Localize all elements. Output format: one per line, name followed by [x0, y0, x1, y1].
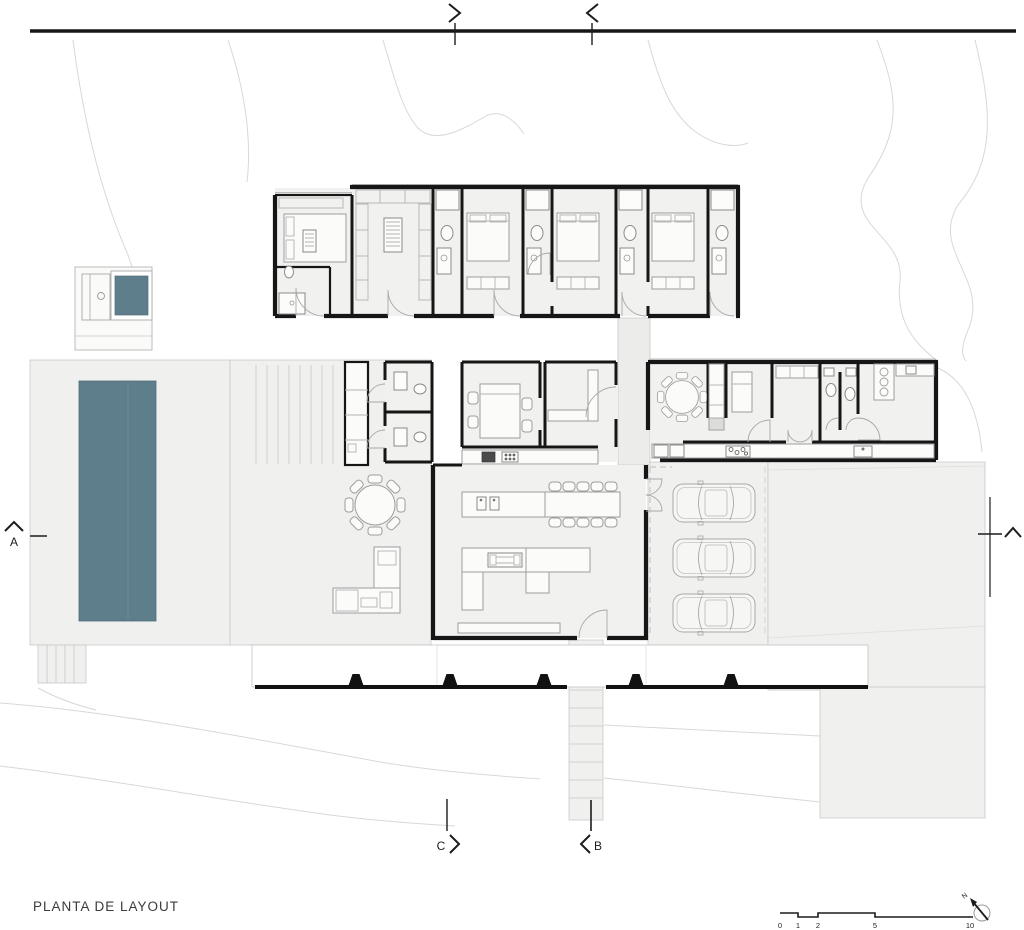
- scale-bar: 0 1 2 5 10: [778, 913, 974, 930]
- pool-area: [75, 267, 156, 621]
- chair: [522, 420, 532, 432]
- toilet: [624, 226, 636, 241]
- chair: [468, 416, 478, 428]
- kitchen-sink: [854, 446, 872, 457]
- kitchen-island: [462, 492, 545, 517]
- dining-table: [545, 492, 620, 517]
- section-marker-top-left: [449, 4, 460, 45]
- toilet: [716, 226, 728, 241]
- car: [673, 591, 755, 635]
- service-wing: [648, 359, 938, 460]
- living-hall: [433, 465, 662, 640]
- corridor-spine: [618, 318, 650, 465]
- middle-wing: [345, 362, 618, 465]
- master-toilet: [285, 266, 294, 278]
- spa-tub: [115, 276, 148, 315]
- pool-house: [75, 267, 152, 350]
- closet-island: [384, 218, 402, 252]
- scale-tick-5: 5: [873, 921, 877, 930]
- section-arrow-up-icon: [5, 522, 23, 531]
- floor-plan-sheet: A C B PLANTA DE LAYOUT 0 1 2 5 10: [0, 0, 1024, 930]
- toilet: [414, 384, 426, 394]
- toilet: [826, 384, 836, 397]
- scale-tick-0: 0: [778, 921, 782, 930]
- section-arrow-left-icon: [587, 4, 598, 22]
- section-label-a: A: [10, 535, 18, 549]
- north-label: N: [961, 892, 969, 901]
- sideboard: [458, 623, 560, 633]
- kitchen-island: [732, 372, 752, 412]
- desk: [480, 384, 520, 438]
- car: [673, 536, 755, 580]
- stove: [726, 446, 750, 457]
- toilet: [441, 226, 453, 241]
- floor-plan-drawing: A C B PLANTA DE LAYOUT 0 1 2 5 10: [0, 0, 1024, 930]
- cooktop: [482, 452, 495, 462]
- bedroom: [652, 213, 694, 289]
- section-arrow-right-icon: [450, 835, 459, 853]
- swimming-pool: [79, 381, 156, 621]
- bedroom: [557, 213, 599, 289]
- section-arrow-left-icon: [581, 835, 590, 853]
- bench: [557, 277, 599, 289]
- sink: [394, 428, 407, 446]
- pool-deck-steps: [38, 645, 86, 683]
- grill: [502, 452, 518, 462]
- chair: [468, 392, 478, 404]
- bed: [557, 213, 599, 261]
- section-arrow-up-icon: [1005, 528, 1021, 537]
- veranda: [252, 645, 868, 687]
- south-kitchen-counter: [652, 444, 934, 458]
- bed: [467, 213, 509, 261]
- laundry-sink: [906, 366, 916, 374]
- sink: [846, 368, 856, 376]
- bench: [467, 277, 509, 289]
- scale-tick-10: 10: [966, 921, 974, 930]
- section-label-c: C: [437, 839, 446, 853]
- washer-column: [874, 364, 894, 400]
- toilet: [845, 388, 855, 401]
- scale-bar-line: [780, 913, 973, 917]
- console-table: [488, 553, 522, 567]
- sink: [394, 372, 407, 390]
- inner-kitchen-counter: [462, 447, 598, 464]
- bedroom-wing: [275, 185, 740, 317]
- section-arrow-right-icon: [449, 4, 460, 22]
- drawing-title: PLANTA DE LAYOUT: [33, 899, 179, 914]
- scale-tick-2: 2: [816, 921, 820, 930]
- lower-terrace: [820, 687, 985, 818]
- terrace-cabinet: [345, 362, 368, 465]
- section-marker-top-right: [587, 4, 598, 45]
- chair: [522, 398, 532, 410]
- sink: [824, 368, 834, 376]
- bed: [652, 213, 694, 261]
- toilet: [531, 226, 543, 241]
- kitchen-tall-cabinet: [709, 364, 724, 430]
- bench: [652, 277, 694, 289]
- l-sofa: [588, 370, 598, 421]
- scale-tick-1: 1: [796, 921, 800, 930]
- car: [673, 481, 755, 525]
- toilet: [414, 432, 426, 442]
- section-label-b: B: [594, 839, 602, 853]
